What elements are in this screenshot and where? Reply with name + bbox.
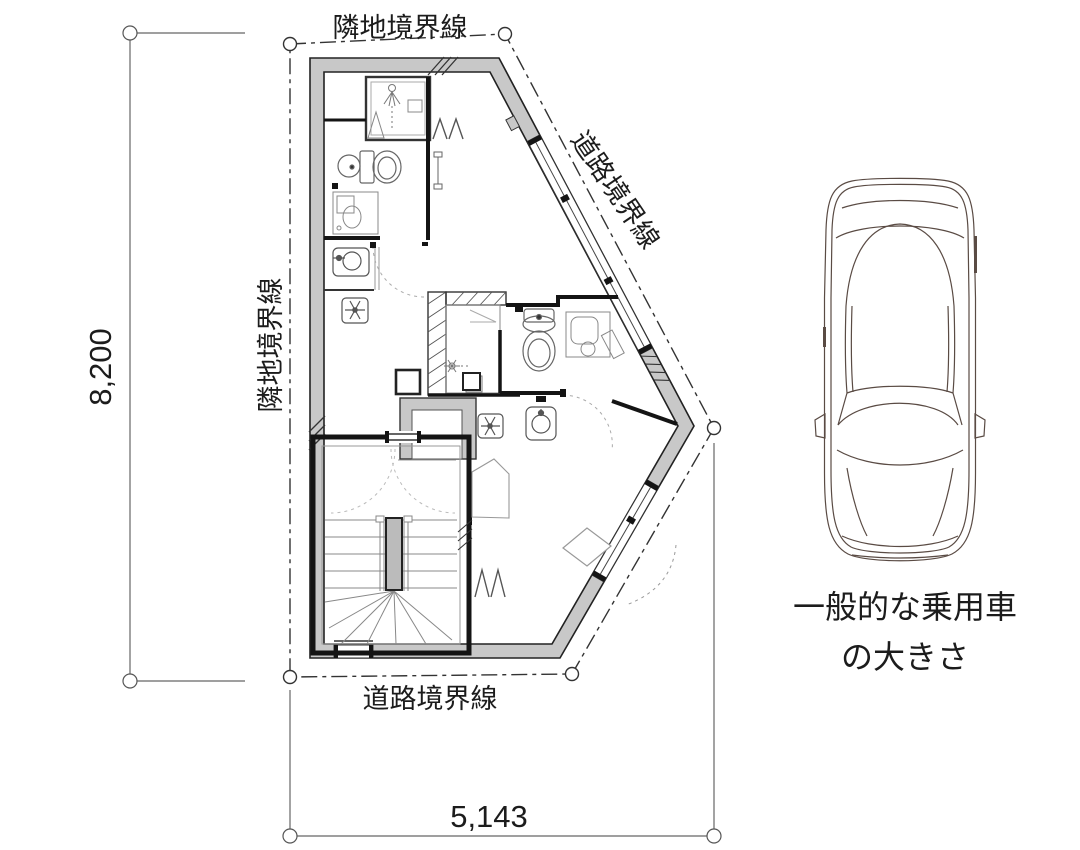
car-mirror-right — [975, 414, 985, 438]
floor-plan-drawing: 8,200 5,143 — [0, 0, 1080, 850]
dim-width-label: 5,143 — [450, 799, 528, 834]
car-top-view — [815, 178, 985, 560]
floor-plan-page: 8,200 5,143 — [0, 0, 1080, 850]
car-rear-window — [846, 224, 954, 306]
car-caption-line1: 一般的な乗用車 — [793, 589, 1017, 625]
car-caption-line2: の大きさ — [841, 639, 969, 675]
boundary-label-left: 隣地境界線 — [256, 278, 286, 413]
dim-height-label: 8,200 — [83, 328, 118, 406]
boundary-label-top: 隣地境界線 — [333, 13, 468, 43]
boundary-label-road-lower: 道路境界線 — [363, 684, 498, 714]
stair-newel-wall — [386, 518, 402, 590]
car-mirror-left — [815, 414, 825, 438]
entry-door-swing — [626, 545, 676, 605]
car-windshield — [838, 403, 958, 425]
car-body-outline — [825, 178, 976, 560]
